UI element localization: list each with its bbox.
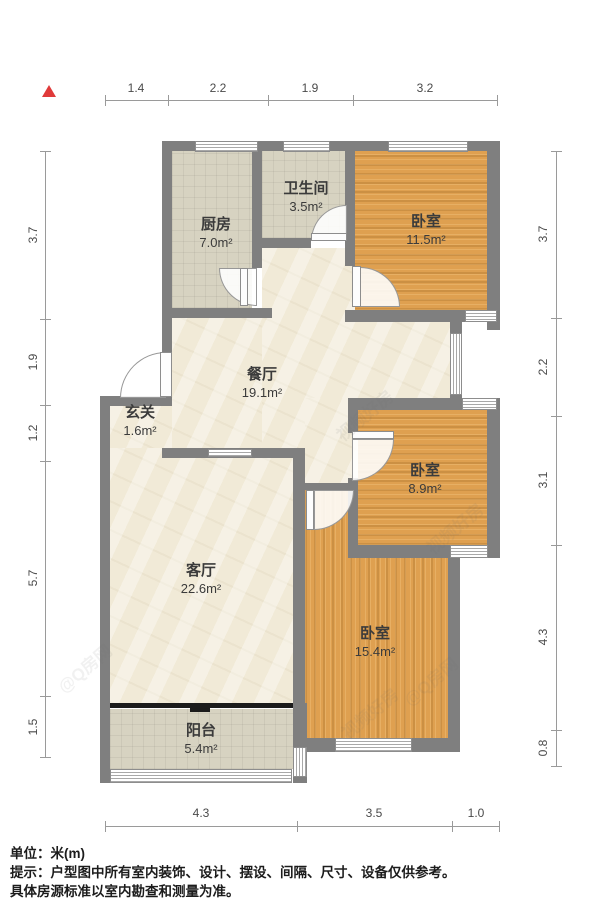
tip-line-1: 提示：户型图中所有室内装饰、设计、摆设、间隔、尺寸、设备仅供参考。 [10,863,456,882]
wall-right-bedroom-bottom [448,545,460,752]
bedroom-bottom-name: 卧室 [355,625,395,644]
bedroom-mid-bottom-window [450,545,488,558]
living-name: 客厅 [181,562,221,581]
bedroom-mid-corner-window [462,398,497,410]
balcony-right-window [293,747,307,777]
bedroom-bottom-door-leaf [306,490,314,530]
dim-tick [452,821,453,832]
kitchen-door-leaf [240,268,248,306]
dim-right-4: 4.3 [536,629,550,646]
dim-tick [297,821,298,832]
tip-line-2: 具体房源标准以室内勘查和测量为准。 [10,882,240,901]
unit-note: 单位：米(m) [10,844,85,863]
dim-tick [40,461,51,462]
divider-pass-window [208,449,252,457]
balcony-label: 阳台 5.4m² [184,722,217,757]
dim-right-3: 3.1 [536,472,550,489]
balcony-bottom-window [110,769,292,783]
wall-right-bedroom-top [487,141,500,330]
dim-left-3: 1.2 [26,425,40,442]
bedroom-mid-label: 卧室 8.9m² [408,462,441,497]
compass-north-icon [42,85,56,97]
living-area: 22.6m² [181,581,221,597]
bathroom-name: 卫生间 [283,180,328,199]
wall-left-lower [100,396,110,783]
dim-tick [551,766,562,767]
balcony-name: 阳台 [184,722,217,741]
bathroom-window [283,141,330,152]
bedroom-mid-area: 8.9m² [408,481,441,497]
dim-tick [40,319,51,320]
entry-door-leaf [160,352,172,397]
entry-name: 玄关 [123,404,156,423]
dim-tick [353,95,354,106]
entry-label: 玄关 1.6m² [123,404,156,439]
wall-kitchen-bottom [162,308,272,318]
dim-bottom-3: 1.0 [468,806,485,820]
dim-tick [105,95,106,106]
bathroom-area: 3.5m² [283,199,328,215]
dim-tick [40,757,51,758]
dim-bottom-1: 4.3 [193,806,210,820]
wall-kitchen-right [252,141,262,268]
dim-left-1: 3.7 [26,227,40,244]
bedroom-mid-name: 卧室 [408,462,441,481]
wall-balcony-left-post [100,770,110,783]
dim-bottom-2: 3.5 [366,806,383,820]
kitchen-area: 7.0m² [199,235,232,251]
balcony-area: 5.4m² [184,741,217,757]
dim-left-2: 1.9 [26,354,40,371]
dim-line-bottom [105,826,500,827]
bedroom-bottom-window [335,738,412,752]
floorplan-page: 厨房 7.0m² 卫生间 3.5m² 卧室 11.5m² 餐厅 19.1m² 玄… [0,0,600,923]
dim-line-left [45,151,46,757]
dim-tick [168,95,169,106]
dim-tick [551,730,562,731]
dining-label: 餐厅 19.1m² [242,366,282,401]
dim-top-4: 3.2 [417,81,434,95]
dim-tick [40,696,51,697]
bedroom-bottom-area: 15.4m² [355,644,395,660]
dim-left-5: 1.5 [26,719,40,736]
entry-area: 1.6m² [123,423,156,439]
dim-tick [105,821,106,832]
bedroom-top-door-leaf [352,266,361,307]
kitchen-label: 厨房 7.0m² [199,216,232,251]
dim-tick [497,95,498,106]
dim-left-4: 5.7 [26,570,40,587]
bedroom-top-corner-window [465,310,497,322]
dim-right-5: 0.8 [536,740,550,757]
dim-right-2: 2.2 [536,359,550,376]
dim-tick [499,821,500,832]
wall-bathroom-bottom-east [348,238,355,248]
living-label: 客厅 22.6m² [181,562,221,597]
balcony-divider-block [190,703,210,712]
bedroom-top-window [388,141,468,152]
dining-name: 餐厅 [242,366,282,385]
wall-left-upper [162,141,172,354]
dim-top-2: 2.2 [210,81,227,95]
dining-right-window [450,333,462,395]
wall-bedroom-bottom-doorhead [305,483,352,490]
bathroom-door-leaf [311,233,347,241]
dim-right-1: 3.7 [536,226,550,243]
dim-tick [40,151,51,152]
dim-tick [268,95,269,106]
wall-living-right [293,448,305,712]
dim-tick [551,545,562,546]
dim-tick [551,151,562,152]
kitchen-window [195,141,258,152]
kitchen-name: 厨房 [199,216,232,235]
dim-tick [551,416,562,417]
wall-bathroom-bottom [252,238,311,248]
dim-line-top [105,100,498,101]
dining-area: 19.1m² [242,385,282,401]
wall-right-bedroom-mid [487,398,500,558]
bedroom-top-label: 卧室 11.5m² [406,213,446,248]
dim-tick [551,318,562,319]
dim-top-1: 1.4 [128,81,145,95]
bedroom-top-area: 11.5m² [406,232,446,248]
bedroom-bottom-label: 卧室 15.4m² [355,625,395,660]
dim-line-right [556,151,557,766]
bedroom-top-name: 卧室 [406,213,446,232]
dim-tick [40,405,51,406]
dim-top-3: 1.9 [302,81,319,95]
bathroom-label: 卫生间 3.5m² [283,180,328,215]
